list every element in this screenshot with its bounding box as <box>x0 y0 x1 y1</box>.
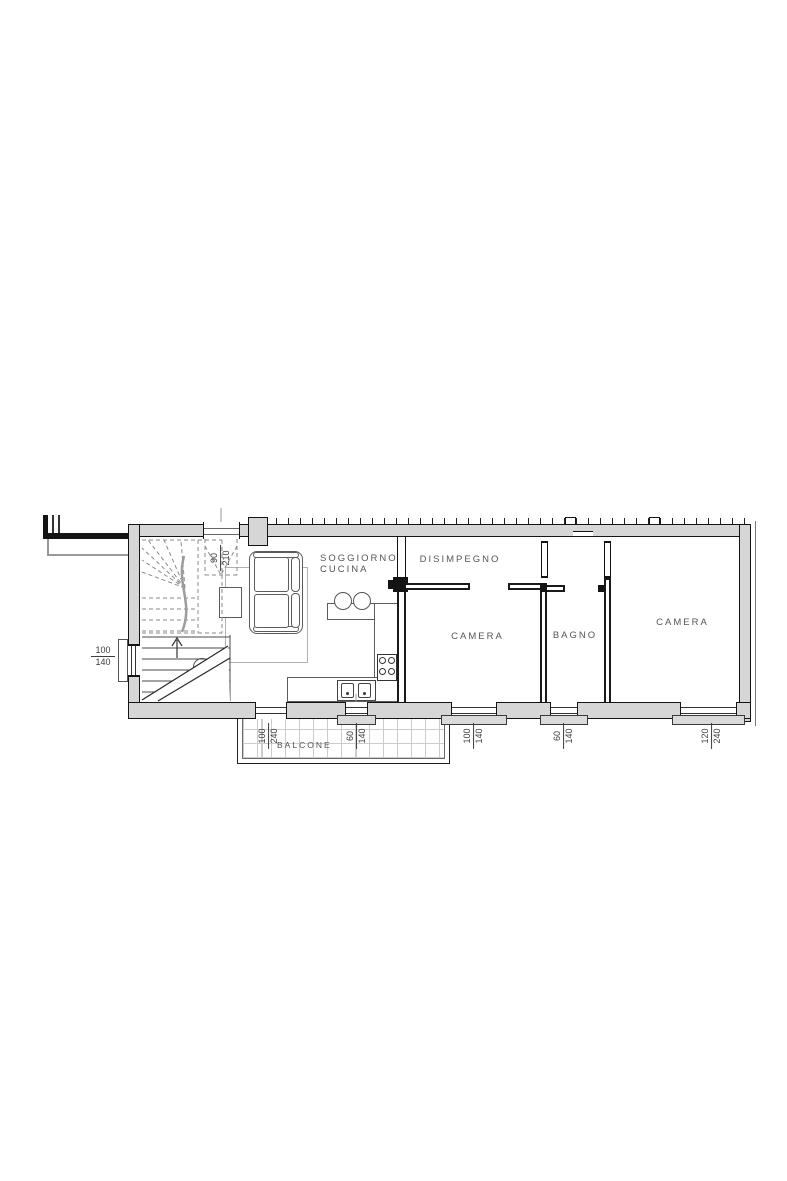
sofa-back-cushion <box>291 557 300 592</box>
room-label-balcone: BALCONE <box>277 740 332 751</box>
dimension-stair-window: 100 140 <box>88 646 118 668</box>
stove-burner-icon <box>388 668 395 675</box>
window-glazing <box>681 707 736 714</box>
floor-plan-page: { "labels": { "soggiorno_line1": "SOGGIO… <box>0 0 787 1181</box>
dimension-bagno-window: 60 140 <box>553 719 575 753</box>
staircase-break-line <box>142 646 230 701</box>
sink-drain-dot <box>363 692 366 695</box>
corridor-partition-left <box>541 541 548 578</box>
passage-soggiorno-disimpegno <box>397 537 406 578</box>
sofa-seat-cushion <box>254 594 289 628</box>
wall-disimpegno-camera1-left <box>406 583 470 590</box>
room-label-bagno: BAGNO <box>545 630 605 641</box>
staircase-handrail-squiggle <box>182 556 186 632</box>
annex-wall-vertical <box>43 515 48 539</box>
annex-thin-line-v <box>47 539 49 555</box>
room-label-camera1: CAMERA <box>430 631 525 642</box>
kitchen-round-basin <box>334 592 352 610</box>
top-wall-stub <box>565 517 576 525</box>
dim-height: 210 <box>223 550 232 565</box>
staircase-lower-flight <box>142 635 230 701</box>
wall-bagno-camera2 <box>604 578 611 702</box>
dimension-camera1-window: 100 140 <box>463 719 485 753</box>
room-label-soggiorno-line2: CUCINA <box>320 564 398 575</box>
dimension-camera2-window: 120 240 <box>701 719 723 753</box>
wall-bagno-top <box>547 585 565 592</box>
wall-junction <box>540 583 547 592</box>
dim-width: 100 <box>463 728 472 743</box>
dim-height: 140 <box>95 658 110 667</box>
dim-width: 60 <box>553 731 562 741</box>
annex-wall-tick <box>52 515 54 533</box>
corridor-partition-right <box>604 541 611 578</box>
sink-drain-dot <box>346 692 349 695</box>
dimension-entrance-door: 90 210 <box>210 541 232 575</box>
sink-bowl <box>358 683 371 698</box>
stove-burner-icon <box>388 657 395 664</box>
light-point-symbol: L <box>193 658 211 676</box>
window-glazing <box>346 707 367 714</box>
entrance-door-opening <box>203 522 240 539</box>
dim-height: 140 <box>476 728 485 743</box>
wall-bottom <box>128 702 751 719</box>
window-glazing <box>551 707 577 714</box>
window-sill-stairwell <box>118 639 128 682</box>
window-glazing <box>256 707 286 714</box>
annex-wall-tick <box>58 515 60 533</box>
right-boundary-line <box>755 521 756 726</box>
dim-width: 90 <box>210 553 219 563</box>
window-glazing <box>452 707 496 714</box>
top-wall-pillar <box>248 517 268 546</box>
sofa-back-cushion <box>291 593 300 628</box>
kitchen-round-basin <box>353 592 371 610</box>
dim-width: 100 <box>95 646 110 655</box>
top-wall-recess <box>573 531 593 536</box>
entrance-threshold-lines <box>204 528 239 535</box>
dimension-balcony-door: 100 240 <box>258 719 280 753</box>
dim-height: 140 <box>566 728 575 743</box>
staircase-direction-arrow <box>172 638 182 658</box>
window-balcony-door <box>255 702 287 719</box>
dim-height: 240 <box>271 728 280 743</box>
sofa-seat-cushion <box>254 557 289 592</box>
annex-wall-horizontal <box>43 533 128 539</box>
window-glazing <box>131 646 136 675</box>
dim-width: 100 <box>258 728 267 743</box>
stove-burner-icon <box>379 657 386 664</box>
sink-bowl <box>341 683 354 698</box>
wall-soggiorno-camera1 <box>397 592 406 702</box>
room-label-soggiorno: SOGGIORNO CUCINA <box>320 553 398 575</box>
dim-width: 60 <box>346 731 355 741</box>
wall-camera1-bagno <box>540 592 547 702</box>
window-stairwell <box>128 645 140 676</box>
annex-thin-line-h <box>47 554 128 556</box>
wall-left-upper <box>128 524 140 645</box>
top-wall-stub <box>649 517 660 525</box>
light-point-letter: L <box>200 663 204 672</box>
floor-plan-canvas: L BALCONE <box>0 0 787 1181</box>
side-table <box>219 587 242 618</box>
room-label-camera2: CAMERA <box>635 617 730 628</box>
dim-height: 140 <box>359 728 368 743</box>
dimension-kitchen-window: 60 140 <box>346 719 368 753</box>
dim-height: 240 <box>714 728 723 743</box>
dim-width: 120 <box>701 728 710 743</box>
wall-right <box>739 524 751 722</box>
stove-burner-icon <box>379 668 386 675</box>
room-label-soggiorno-line1: SOGGIORNO <box>320 553 398 564</box>
pillar-stub <box>388 580 394 589</box>
room-label-disimpegno: DISIMPEGNO <box>410 554 510 565</box>
